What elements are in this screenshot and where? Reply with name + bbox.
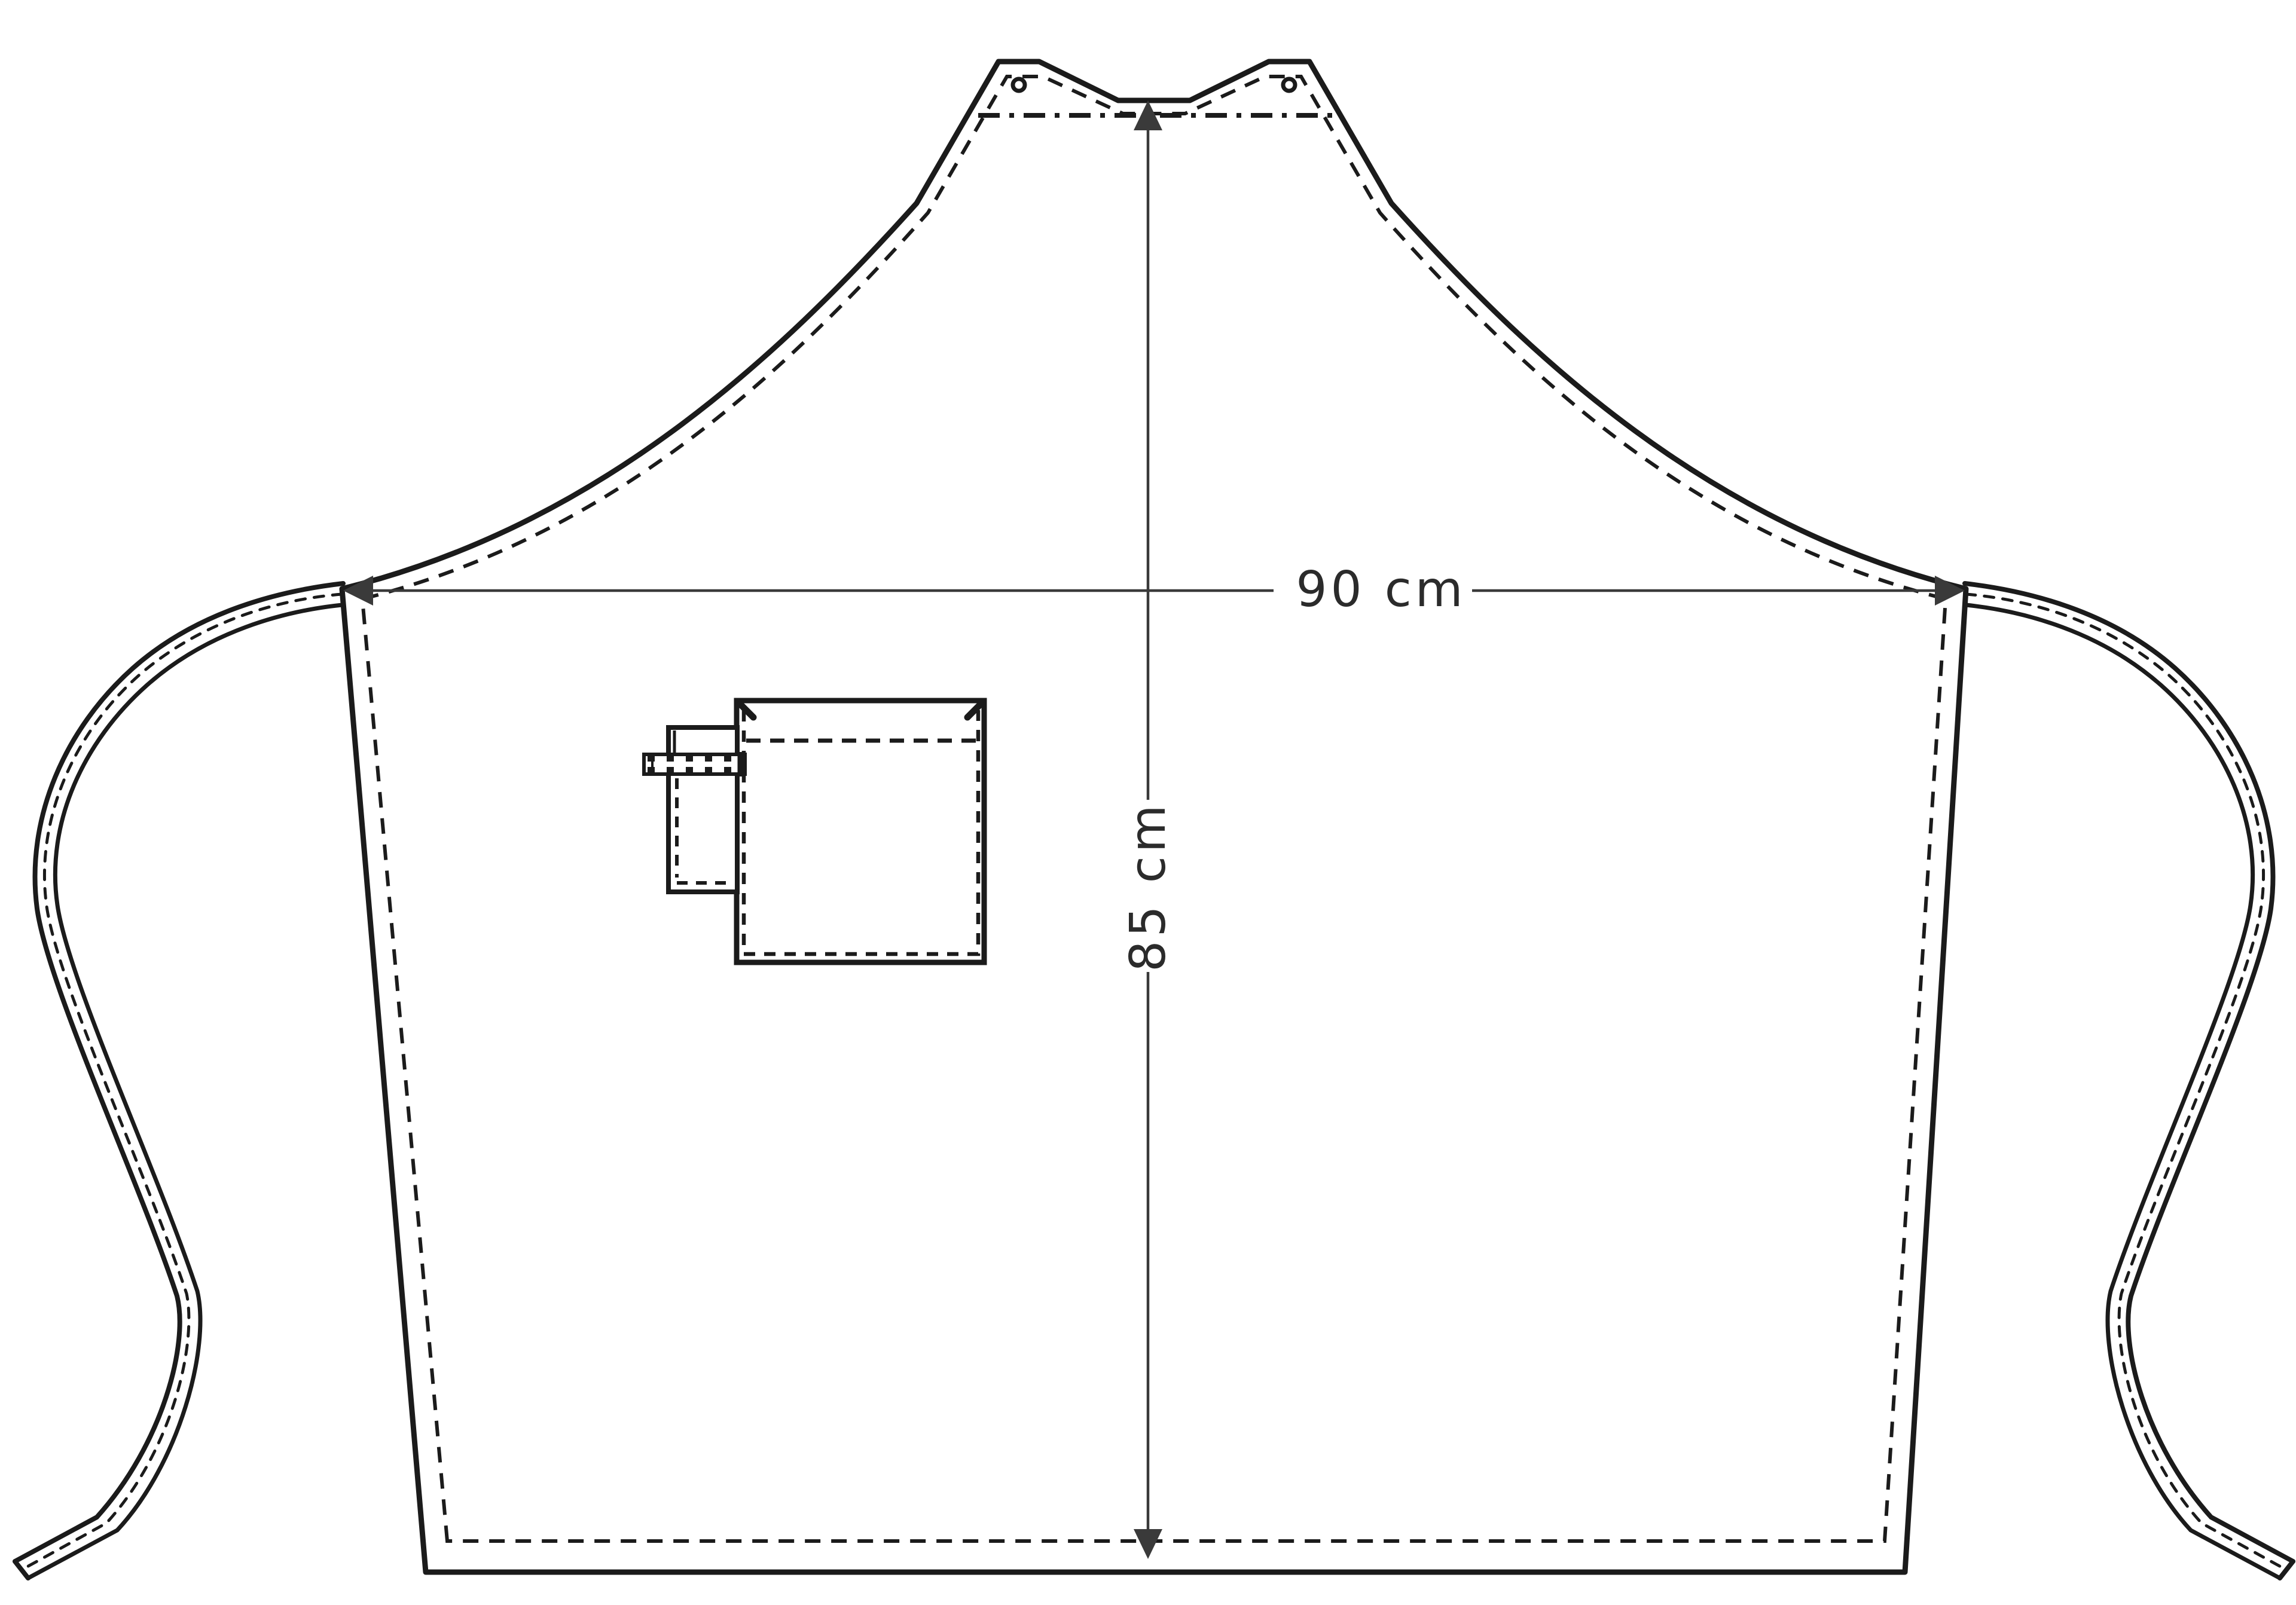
left-tie-end-cap — [15, 1561, 28, 1578]
right-tie-outer-edge — [1965, 583, 2293, 1561]
width-dimension-label: 90 cm — [1296, 561, 1466, 618]
left-tie-outer-edge — [15, 583, 343, 1561]
height-dimension-label: 85 cm — [1120, 801, 1177, 971]
apron-technical-drawing: 90 cm 85 cm — [0, 0, 2296, 1605]
side-pen-pocket-outline — [668, 727, 737, 892]
right-eyelet-icon — [1283, 79, 1295, 91]
right-waist-tie — [1965, 583, 2293, 1578]
left-waist-tie — [15, 583, 343, 1578]
right-tie-inner-edge — [1966, 605, 2280, 1578]
left-tie-inner-edge — [28, 605, 342, 1578]
apron-pattern-diagram: 90 cm 85 cm — [0, 0, 2296, 1605]
left-eyelet-icon — [1013, 79, 1025, 91]
right-tie-end-cap — [2280, 1561, 2293, 1578]
